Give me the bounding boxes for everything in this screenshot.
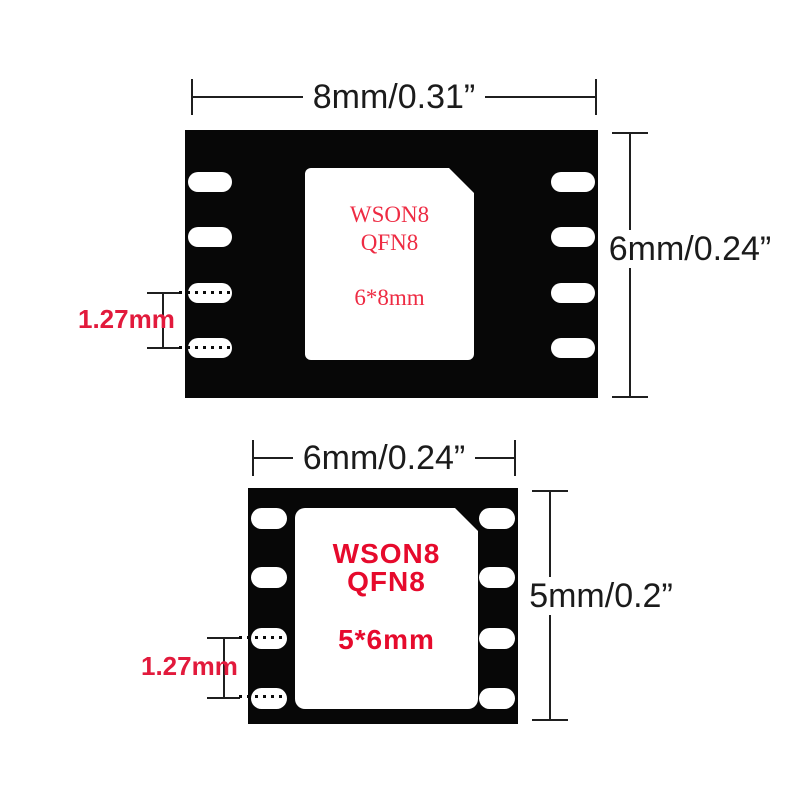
dimension-line <box>629 268 631 396</box>
chip-pad <box>479 508 515 529</box>
bottom-chip-text-line2: QFN8 <box>295 567 478 597</box>
bottom-chip-label: WSON8 QFN8 5*6mm <box>295 508 478 709</box>
top-chip-height-label: 6mm/0.24” <box>609 230 772 268</box>
leader-dotted-line <box>239 695 283 698</box>
dimension-tick <box>147 347 180 349</box>
dimension-line <box>475 457 514 459</box>
top-chip-text-line1: WSON8 <box>305 202 474 228</box>
dimension-line <box>485 96 595 98</box>
top-chip-width-label: 8mm/0.31” <box>313 78 476 117</box>
chip-pad <box>479 688 515 709</box>
top-chip-text-line3: 6*8mm <box>305 285 474 311</box>
dimension-line <box>629 134 631 230</box>
dimension-line <box>549 615 551 719</box>
chip-pad <box>251 567 287 588</box>
top-chip-pitch-label: 1.27mm <box>78 304 175 334</box>
top-chip-height-dimension: 6mm/0.24” <box>612 132 648 398</box>
chip-pad <box>479 567 515 588</box>
dimension-line <box>193 96 303 98</box>
dimension-tick <box>207 697 240 699</box>
bottom-chip-height-label: 5mm/0.2” <box>529 577 673 615</box>
chip-pad <box>251 508 287 529</box>
chip-pad <box>551 227 595 247</box>
dimension-line <box>254 457 293 459</box>
chip-pad <box>251 688 287 709</box>
top-chip-label: WSON8 QFN8 6*8mm <box>305 168 474 360</box>
chip-pad <box>479 628 515 649</box>
top-chip-body: WSON8 QFN8 6*8mm <box>185 130 598 398</box>
bottom-chip-text-line3: 5*6mm <box>295 625 478 655</box>
product-dimension-diagram: 8mm/0.31” WSON8 QFN8 6*8mm 6mm/0.24” 1.2… <box>0 0 800 800</box>
chip-pad <box>551 338 595 358</box>
top-chip-text-line2: QFN8 <box>305 230 474 256</box>
dimension-tick <box>532 719 568 721</box>
bottom-chip-text-line1: WSON8 <box>295 539 478 569</box>
chip-pad <box>188 172 232 192</box>
bottom-chip-height-dimension: 5mm/0.2” <box>532 490 568 721</box>
chip-pad <box>551 283 595 303</box>
dimension-line <box>549 492 551 577</box>
top-chip-width-dimension: 8mm/0.31” <box>191 79 597 115</box>
bottom-chip-width-dimension: 6mm/0.24” <box>252 440 516 476</box>
chip-pad <box>551 172 595 192</box>
leader-dotted-line <box>239 636 283 639</box>
leader-dotted-line <box>179 291 231 294</box>
dimension-tick <box>612 396 648 398</box>
bottom-chip-pitch-label: 1.27mm <box>141 651 238 681</box>
bottom-chip-body: WSON8 QFN8 5*6mm <box>248 488 518 724</box>
bottom-chip-width-label: 6mm/0.24” <box>303 439 466 478</box>
dimension-tick <box>514 440 516 476</box>
leader-dotted-line <box>179 346 231 349</box>
chip-pad <box>188 227 232 247</box>
dimension-tick <box>595 79 597 115</box>
